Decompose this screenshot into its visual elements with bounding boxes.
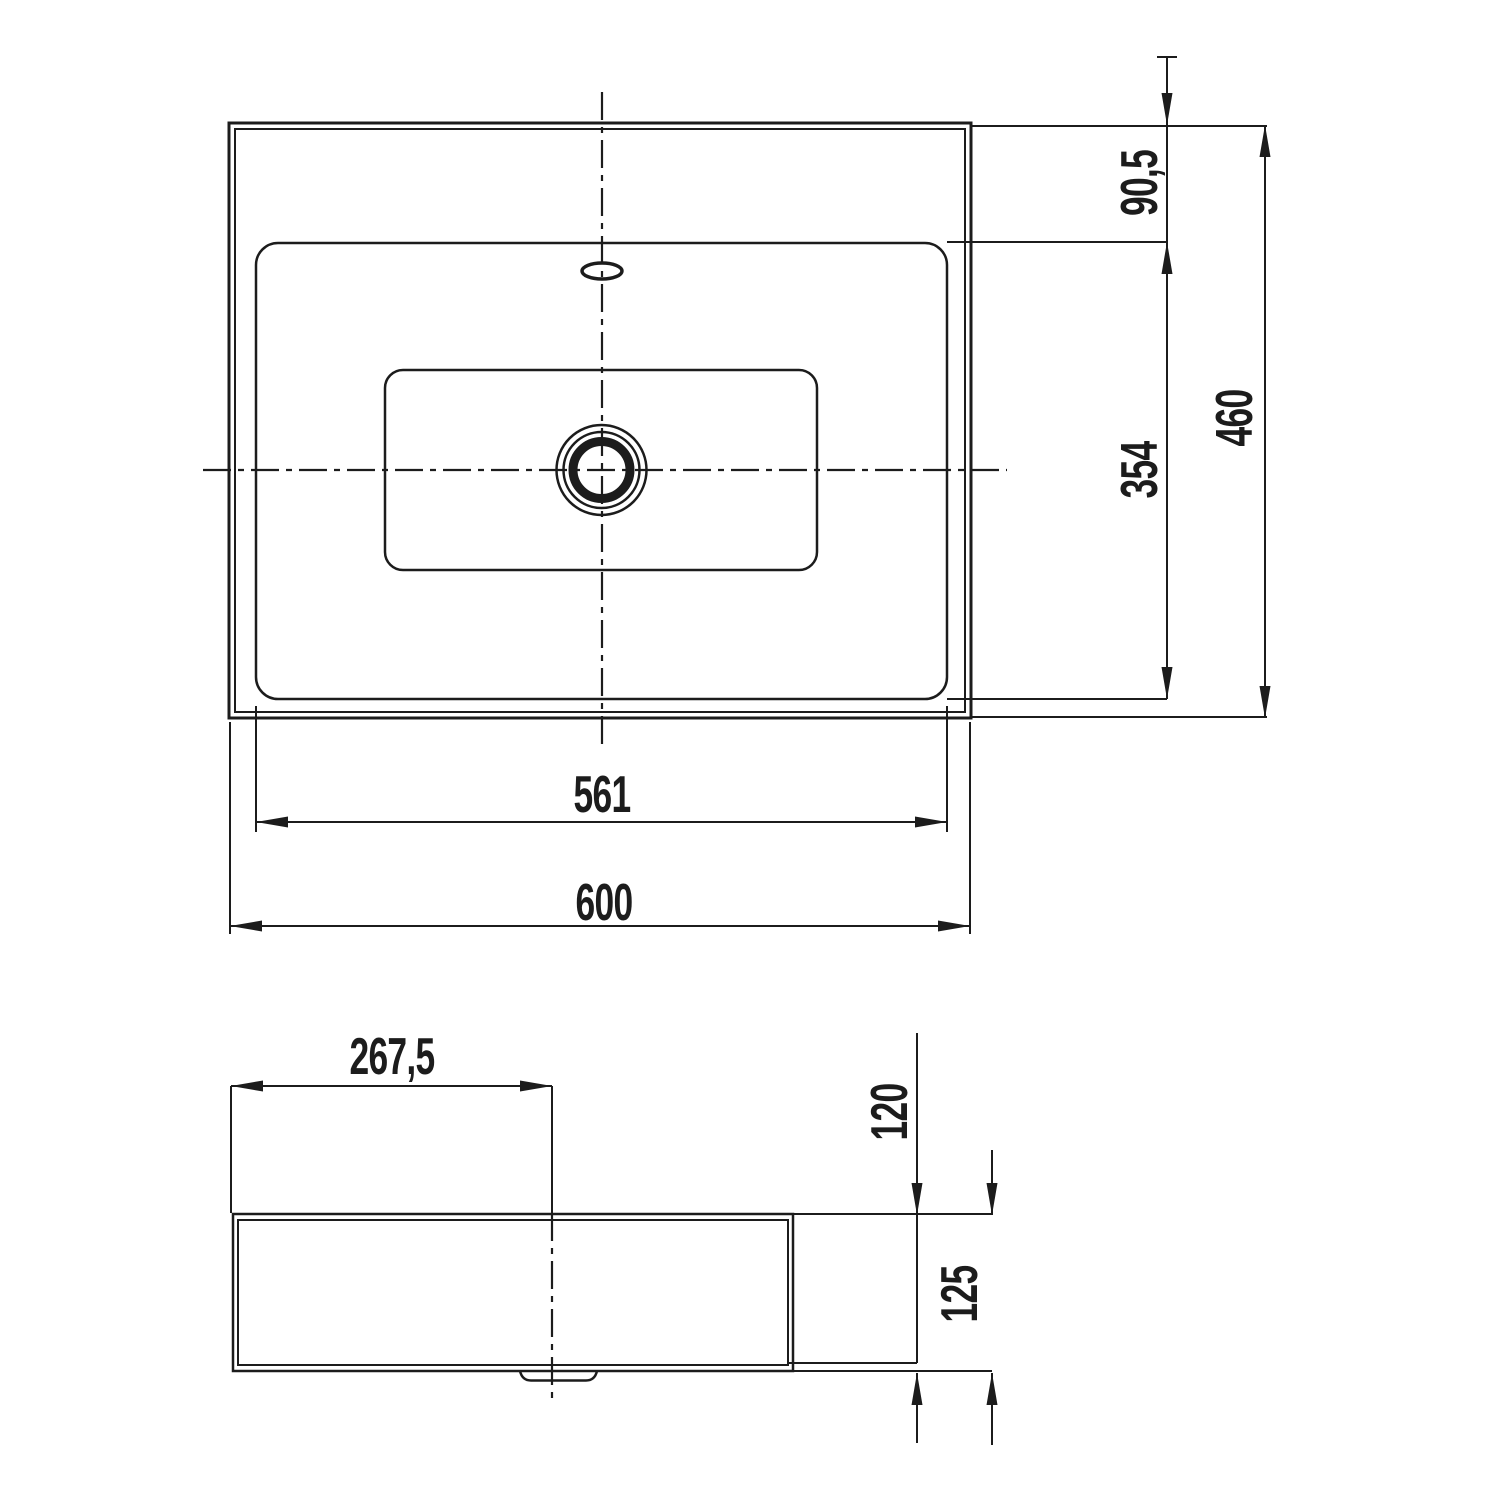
side-body-inner-outline	[238, 1220, 788, 1365]
washbasin-drawing: 90,5 354 460 561 600 267	[0, 0, 1500, 1500]
dim-label-rear-deck-offset: 90,5	[1111, 150, 1168, 216]
technical-drawing-canvas: 90,5 354 460 561 600 267	[0, 0, 1500, 1500]
top-view-inner-outline	[235, 129, 965, 712]
dim-label-basin-width: 561	[574, 766, 631, 823]
dim-label-drain-offset: 267,5	[349, 1028, 434, 1085]
side-body-outer-outline	[233, 1214, 793, 1371]
top-view-outer-outline	[229, 123, 971, 718]
dim-label-basin-depth: 354	[1111, 441, 1168, 499]
dim-label-overall-depth: 460	[1206, 390, 1263, 447]
side-view: 267,5 120 125	[231, 1028, 998, 1445]
top-view: 90,5 354 460 561 600	[203, 57, 1271, 934]
dim-label-overall-width: 600	[576, 874, 633, 931]
dim-label-deck-height: 120	[861, 1084, 918, 1141]
dim-label-overall-height: 125	[931, 1265, 988, 1322]
side-drain-boss	[520, 1371, 597, 1381]
